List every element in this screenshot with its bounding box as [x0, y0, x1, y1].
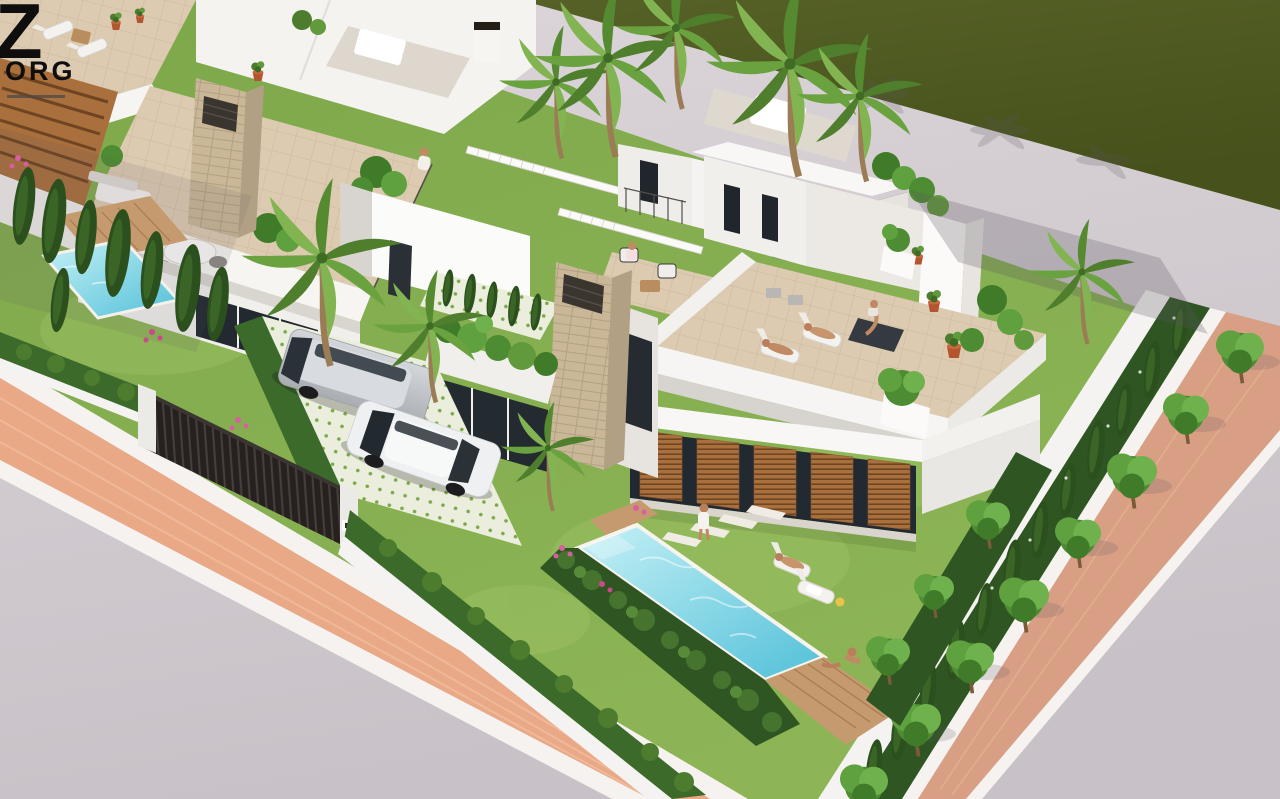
door [724, 184, 740, 234]
door [762, 194, 778, 242]
logo-word: ORG [5, 58, 76, 85]
drink-table [836, 598, 845, 607]
architectural-render: Z ORG [0, 0, 1280, 799]
gate-post [138, 384, 156, 453]
render-canvas [0, 0, 1280, 799]
chimney-trim [474, 22, 500, 30]
logo-tagline-bar [7, 95, 65, 98]
